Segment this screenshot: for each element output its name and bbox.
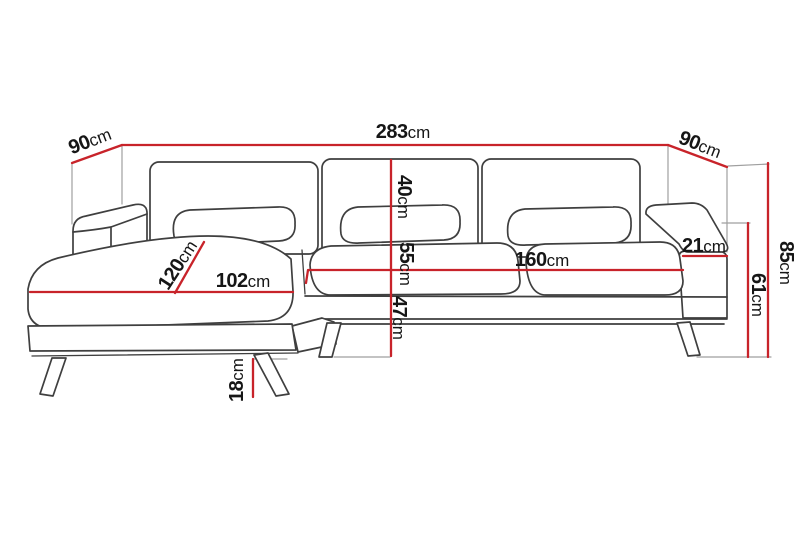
dim-value: 85: [775, 241, 797, 262]
sofa-base-rail: [305, 296, 727, 324]
dim-value: 47: [388, 296, 410, 317]
dim-label-overall-height: 85cm: [776, 241, 796, 285]
dim-unit: cm: [748, 294, 767, 317]
dim-value: 55: [395, 242, 417, 263]
dim-unit: cm: [228, 358, 247, 381]
dim-unit: cm: [389, 317, 408, 340]
sofa-drawing: [28, 159, 728, 396]
dim-label-armrest-width: 21cm: [682, 236, 726, 256]
chaise-leg-left: [40, 358, 66, 396]
dim-value: 102: [216, 270, 248, 292]
dim-unit: cm: [394, 196, 413, 219]
dim-label-seat-frame-height: 47cm: [389, 296, 409, 340]
seat-deck-line: [302, 250, 305, 294]
dim-value: 160: [515, 249, 547, 271]
dim-label-chaise-width: 102cm: [216, 271, 271, 291]
dim-label-leg-height: 18cm: [227, 358, 247, 402]
dim-value: 21: [682, 235, 703, 257]
dim-label-armrest-height: 61cm: [748, 273, 768, 317]
dim-unit: cm: [547, 251, 570, 270]
right-armrest-front: [679, 251, 727, 318]
dim-value: 61: [747, 273, 769, 294]
dim-unit: cm: [248, 272, 271, 291]
dim-unit: cm: [703, 237, 726, 256]
pillow-right: [508, 207, 631, 245]
chaise-base: [28, 324, 296, 351]
guide-height-top-tick: [728, 164, 769, 166]
sofa-dimension-diagram: 283cm 90cm 90cm 85cm 61cm 21cm 160cm 40c…: [0, 0, 800, 533]
dim-label-seat-width: 160cm: [515, 250, 570, 270]
dim-value: 18: [226, 381, 248, 402]
dim-label-total-width: 283cm: [376, 122, 431, 142]
dim-label-seat-cushion-height: 55cm: [396, 242, 416, 286]
dim-label-backrest-height: 40cm: [394, 175, 414, 219]
dim-unit: cm: [776, 262, 795, 285]
dim-value: 40: [393, 175, 415, 196]
dim-unit: cm: [396, 263, 415, 286]
dim-value: 283: [376, 121, 408, 143]
dim-unit: cm: [408, 123, 431, 142]
sofa-leg-right: [677, 322, 700, 356]
